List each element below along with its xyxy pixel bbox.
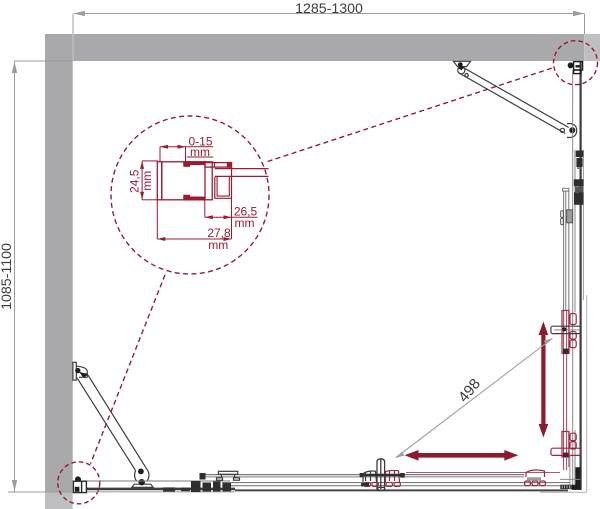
svg-text:498: 498 — [455, 376, 484, 406]
svg-text:mm: mm — [235, 216, 255, 230]
svg-text:mm: mm — [190, 145, 210, 159]
svg-text:mm: mm — [140, 171, 154, 191]
svg-text:mm: mm — [208, 238, 228, 252]
svg-text:1085-1100: 1085-1100 — [0, 243, 15, 310]
svg-text:1285-1300: 1285-1300 — [295, 1, 363, 17]
